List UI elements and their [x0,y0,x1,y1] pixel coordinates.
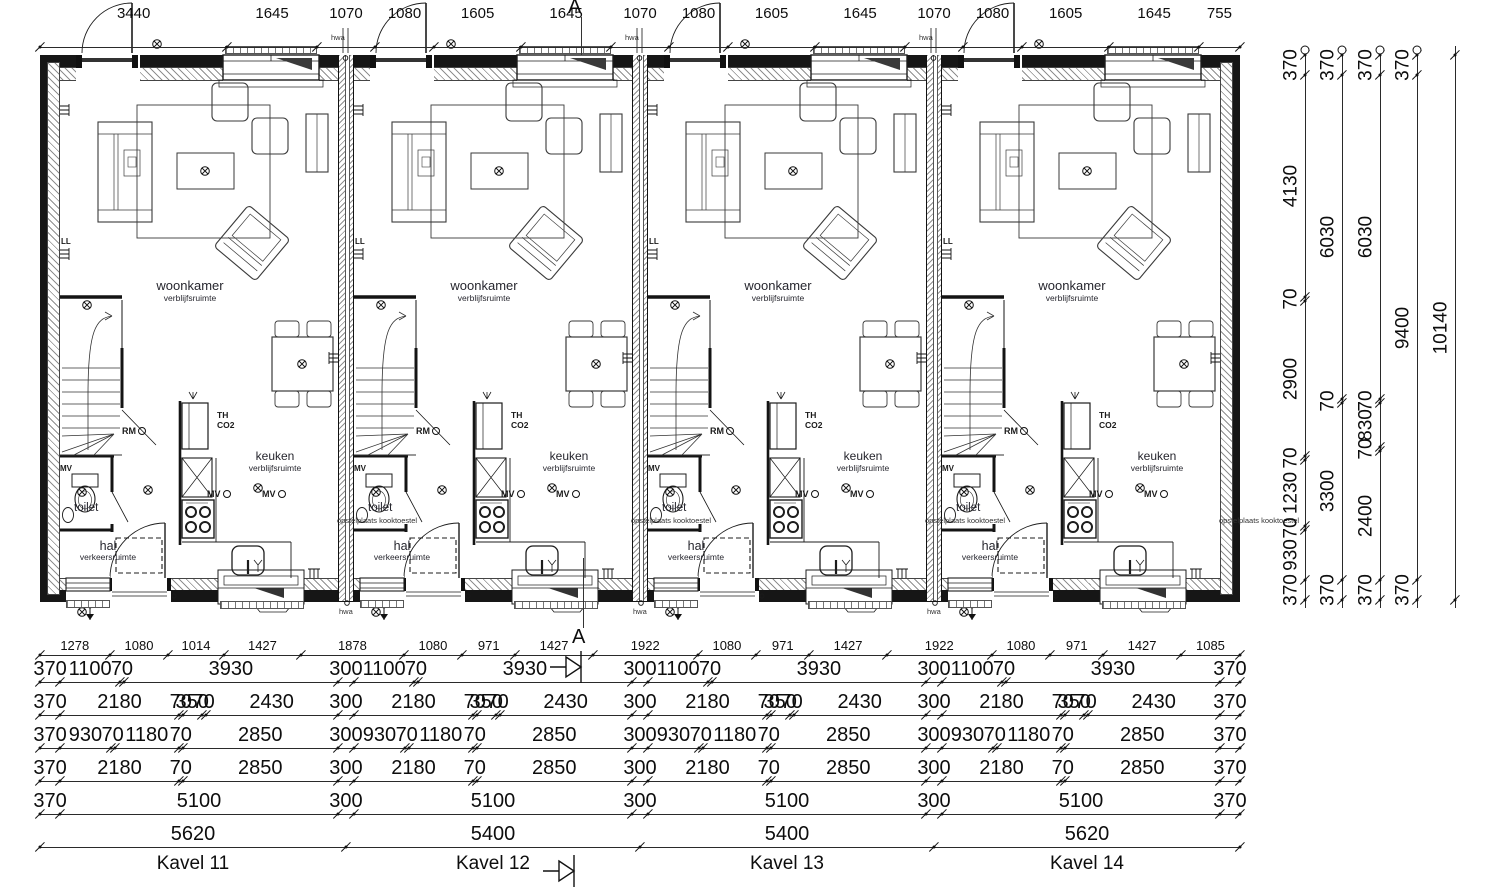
dimension-label: 2850 [238,758,283,778]
dimension-mark [1063,714,1066,717]
house-unit-3: woonkamer verblijfsruimte keuken verblij… [648,0,926,650]
dimension-mark [1086,714,1089,717]
dimension-mark [514,654,517,657]
mv-text: MV [850,489,864,499]
room-name: woonkamer [1012,279,1132,294]
dimension-label: 370 [1282,49,1301,81]
section-line-top [581,17,582,55]
rug [725,105,858,238]
plot-label: Kavel 14 [1050,853,1124,875]
dimension-mark [1379,450,1382,453]
dimension-mark [924,780,927,783]
dimension-label: 1645 [843,6,876,21]
dimension-mark [1376,46,1385,55]
dimension-mark [353,681,356,684]
room-label-toilet: toilet [956,502,980,515]
armchair [214,205,290,281]
mv-toilet-label: MV [354,465,366,473]
toilet-fixtures [63,474,99,523]
room-label-keuken: keuken verblijfsruimte [516,450,622,474]
dimension-mark [1380,46,1381,608]
dimension-label: 2850 [826,725,871,745]
room-label-hal: hal verkeersruimte [947,539,1033,563]
dimension-label: 930 [69,725,102,745]
mv-circle-icon [278,490,286,498]
stove [1064,500,1096,538]
mv-label: MV [262,490,286,499]
dimension-mark [39,846,42,849]
dimension-mark [1004,681,1007,684]
dimension-label: 1427 [834,639,863,652]
window-sill-band [66,600,110,608]
dimension-mark [1338,46,1347,55]
dimension-label: 2180 [97,758,142,778]
dimension-mark [755,654,758,657]
dimension-label: 1014 [182,639,211,652]
dimension-label: 1427 [1128,639,1157,652]
door-sill-band [220,601,304,609]
pouf [800,83,836,121]
co2-sensor-label: CO2 [805,421,822,430]
basin [945,508,956,523]
rm-circle-icon [1020,427,1028,435]
dimension-label: 1080 [712,639,741,652]
smoke-detector-label: RM [710,427,734,436]
room-subtitle: verkeersruimte [653,553,739,563]
dimension-mark [1304,73,1307,76]
sofa [980,122,1034,222]
dimension-mark [647,714,650,717]
dimension-label: 70 [464,758,486,778]
room-name: woonkamer [718,279,838,294]
dimension-label: 971 [772,639,794,652]
dimension-label: 1605 [1049,6,1082,21]
dimension-mark [315,46,318,49]
dimension-label: 70 [984,725,1006,745]
dimension-mark [1239,780,1242,783]
dimension-label: 70 [486,692,508,712]
dimension-mark [1341,599,1344,602]
dimension-mark [1379,401,1382,404]
dimension-label: 755 [1207,6,1232,21]
living-room-furniture [686,83,916,281]
dimension-label: 5400 [471,824,516,844]
mv-circle-icon [223,490,231,498]
dimension-label: 3300 [1319,470,1338,512]
dimension-mark [941,780,944,783]
dimension-mark [1218,714,1221,717]
dimension-label: 2400 [1357,494,1376,536]
dimension-mark [1413,46,1422,55]
dimension-mark [639,846,642,849]
dimension-label: 5100 [765,791,810,811]
radiator-symbols [942,104,1220,578]
dimension-label: 370 [1319,574,1338,606]
dimension-mark [1304,599,1307,602]
dimension-mark [647,747,650,750]
dimension-mark [1416,579,1419,582]
window-sill-band [948,600,992,608]
dimension-mark [39,747,42,750]
basin [357,508,368,523]
dimension-mark [769,780,772,783]
dimension-label: 370 [1213,791,1246,811]
room-subtitle: verblijfsruimte [516,464,622,474]
dimension-mark [336,780,339,783]
dimension-mark [885,654,888,657]
dimension-mark [39,654,42,657]
dimension-label: 1100 [951,659,994,679]
dimension-label: 971 [1066,639,1088,652]
dimension-label: 370 [1394,49,1413,81]
dimension-label: 2850 [826,758,871,778]
dimension-label: 70 [781,692,803,712]
plot-label: Kavel 12 [456,853,530,875]
dimension-label: 1180 [713,725,756,745]
dimension-mark [924,714,927,717]
dimension-mark [647,813,650,816]
dimension-label: 3930 [209,659,254,679]
dimension-mark [59,813,62,816]
dimension-mark [924,681,927,684]
dimension-mark [995,747,998,750]
mv-text: MV [207,489,221,499]
dimension-mark [1379,73,1382,76]
house-unit-1: woonkamer verblijfsruimte keuken verblij… [60,0,338,650]
dimension-label: 1070 [623,6,656,21]
dimension-label: 70 [405,659,427,679]
dimension-mark [1218,813,1221,816]
sideboard [306,114,328,172]
dimension-label: 70 [1052,758,1074,778]
dimension-label: 4130 [1282,165,1301,207]
dimension-label: 2180 [685,692,730,712]
kitchen-fixtures [1064,392,1173,578]
radiator-symbols [60,104,338,578]
section-marker-bottom: A [572,626,585,649]
dimension-mark [1342,46,1343,608]
house-unit-2: woonkamer verblijfsruimte keuken verblij… [354,0,632,650]
dimension-label: 370 [1357,49,1376,81]
dimension-label: 370 [33,659,66,679]
dimension-mark [1454,54,1457,57]
dimension-mark [941,681,944,684]
dimension-label: 5400 [765,824,810,844]
mv-label: MV [207,490,231,499]
dimension-label: 370 [33,725,66,745]
dimension-label: 5100 [1059,791,1104,811]
dimension-mark [432,46,435,49]
dimension-mark [1416,73,1419,76]
dimension-mark [1239,714,1242,717]
dimension-label: 70 [170,758,192,778]
dimension-mark [647,681,650,684]
stairs [942,312,1004,455]
armchair [1096,205,1172,281]
living-room-furniture [98,83,328,281]
dimension-mark [1063,747,1066,750]
mv-label: MV [850,490,874,499]
dimension-label: 370 [1213,758,1246,778]
door-sill-band [1102,601,1186,609]
dimension-mark [39,780,42,783]
dimension-mark [1379,599,1382,602]
front-window [807,53,911,87]
dimension-label: 370 [1394,574,1413,606]
dimension-mark [630,714,633,717]
dimension-mark [1341,401,1344,404]
dimension-mark [696,654,699,657]
dimension-mark [520,46,523,49]
dimension-mark [113,747,116,750]
section-line-bottom [583,558,584,628]
dimension-label: 2430 [543,692,588,712]
room-label-toilet: toilet [662,502,686,515]
cai-symbol [189,392,197,399]
room-label-woonkamer: woonkamer verblijfsruimte [130,279,250,304]
dimension-label: 3440 [117,6,150,21]
dimension-mark [1197,46,1200,49]
dimension-label: 370 [1213,692,1246,712]
dimension-mark [1239,681,1242,684]
dimension-mark [181,780,184,783]
door-sill-band [808,601,892,609]
dimension-label: 1230 [1282,472,1301,514]
dimension-mark [630,681,633,684]
dimension-label: 1645 [1137,6,1170,21]
room-label-keuken: keuken verblijfsruimte [810,450,916,474]
dimension-label: 1070 [917,6,950,21]
living-room-furniture [980,83,1210,281]
dimension-mark [167,654,170,657]
dimension-label: 5620 [171,824,216,844]
room-subtitle: verblijfsruimte [1104,464,1210,474]
dimension-label: 1878 [338,639,367,652]
plot-label: Kavel 13 [750,853,824,875]
room-label-hal: hal verkeersruimte [653,539,739,563]
dimension-mark [353,747,356,750]
dimension-label: 70 [170,725,192,745]
dimension-label: 70 [1075,692,1097,712]
mv-text: MV [1144,489,1158,499]
room-name: woonkamer [130,279,250,294]
window-sill-band [360,600,404,608]
dimension-label: 70 [1319,390,1338,411]
dimension-label: 70 [1357,439,1376,460]
dimension-label: 3930 [797,659,842,679]
dimension-mark [941,813,944,816]
dimension-mark [300,654,303,657]
dimension-mark [769,747,772,750]
dimension-mark [407,747,410,750]
dimension-label: 2900 [1282,357,1301,399]
pouf [1094,83,1130,121]
stairs [354,312,416,455]
dimension-label: 3930 [503,659,548,679]
dimension-label: 70 [690,725,712,745]
dimension-label: 2180 [979,758,1024,778]
mv-circle-icon [811,490,819,498]
dimension-label: 9400 [1394,306,1413,348]
dimension-label: 5100 [471,791,516,811]
dimension-mark [374,46,377,49]
rm-circle-icon [138,427,146,435]
radiator-symbols [648,104,926,578]
dimension-label: 370 [1319,49,1338,81]
room-name: keuken [1104,450,1210,464]
room-label-hal: hal verkeersruimte [65,539,151,563]
dimension-mark [59,681,62,684]
door-sill-band [514,601,598,609]
dimension-mark [647,780,650,783]
rm-text: RM [1004,426,1018,436]
dimension-mark [353,813,356,816]
kitchen-fixtures [770,392,879,578]
dimension-mark [461,654,464,657]
smoke-detector-label: RM [1004,427,1028,436]
room-subtitle: verkeersruimte [359,553,445,563]
dimension-mark [353,714,356,717]
pouf [212,83,248,121]
room-name: keuken [222,450,328,464]
dimension-label: 1085 [1196,639,1225,652]
dimension-label: 1427 [248,639,277,652]
dimension-mark [1239,747,1242,750]
dimension-mark [226,46,229,49]
dimension-label: 370 [33,692,66,712]
dimension-label: 930 [1282,539,1301,571]
window-sill-band [654,600,698,608]
stairs [648,312,710,455]
dimension-label: 1278 [60,639,89,652]
sideboard [600,114,622,172]
dimension-label: 70 [1282,288,1301,309]
dimension-mark [1455,46,1456,608]
kitchen-fixtures [182,392,291,578]
dimension-label: 971 [478,639,500,652]
dimension-mark [498,714,501,717]
dimension-label: 2850 [532,725,577,745]
dimension-label: 1180 [125,725,168,745]
dimension-label: 1922 [925,639,954,652]
room-subtitle: verkeersruimte [947,553,1033,563]
dimension-label: 70 [464,725,486,745]
dimension-label: 2430 [1131,692,1176,712]
dimension-mark [475,747,478,750]
floor-plan-drawing: woonkamer verblijfsruimte keuken verblij… [0,0,1511,891]
dimension-label: 5620 [1065,824,1110,844]
dimension-mark [402,654,405,657]
mv-circle-icon [572,490,580,498]
toilet-fixtures [357,474,393,523]
dimension-mark [941,747,944,750]
dimension-label: 370 [1357,574,1376,606]
dimension-mark [336,714,339,717]
thermostat-label: TH [217,411,228,420]
room-subtitle: verkeersruimte [65,553,151,563]
dimension-label: 2850 [1120,725,1165,745]
room-subtitle: verblijfsruimte [718,294,838,304]
dimension-mark [1416,599,1419,602]
mv-circle-icon [1160,490,1168,498]
dimension-mark [475,714,478,717]
dimension-label: 2180 [685,758,730,778]
dimension-label: 370 [33,758,66,778]
dimension-mark [39,46,42,49]
stairs [60,312,122,455]
dimension-mark [609,46,612,49]
dimension-mark [1304,299,1307,302]
dimension-mark [1102,654,1105,657]
dimension-label: 370 [33,791,66,811]
dimension-label: 370 [1213,659,1246,679]
cai-symbol [777,392,785,399]
front-window [1101,53,1205,87]
dimension-label: 70 [699,659,721,679]
dimension-label: 10140 [1432,301,1451,354]
dimension-mark [1301,46,1310,55]
dimension-mark [336,747,339,750]
toilet-window [360,576,404,602]
dimension-mark [1239,654,1242,657]
toilet-fixtures [945,474,981,523]
dimension-mark [204,714,207,717]
living-room-furniture [392,83,622,281]
room-subtitle: verblijfsruimte [810,464,916,474]
dimension-label: 930 [363,725,396,745]
dimension-mark [1304,529,1307,532]
basin [651,508,662,523]
rm-text: RM [416,426,430,436]
dimension-label: 370 [1213,725,1246,745]
dimension-label: 6030 [1357,216,1376,258]
cai-symbol [483,392,491,399]
mv-text: MV [1089,489,1103,499]
dimension-mark [1341,73,1344,76]
dimension-mark [1304,579,1307,582]
mv-label: MV [556,490,580,499]
dimension-mark [344,846,347,849]
toilet-window [948,576,992,602]
room-label-woonkamer: woonkamer verblijfsruimte [718,279,838,304]
rm-text: RM [710,426,724,436]
dimension-mark [40,682,1240,683]
dimension-mark [39,714,42,717]
dimension-mark [59,747,62,750]
dimension-label: 1080 [682,6,715,21]
stove [770,500,802,538]
thermostat-label: TH [1099,411,1110,420]
mv-text: MV [501,489,515,499]
front-window [219,53,323,87]
plot-label: Kavel 11 [157,853,230,875]
room-subtitle: verblijfsruimte [222,464,328,474]
dimension-mark [122,681,125,684]
dimension-mark [40,47,1240,48]
dimension-label: 2850 [238,725,283,745]
room-subtitle: verblijfsruimte [130,294,250,304]
dimension-mark [1063,780,1066,783]
dimension-mark [39,813,42,816]
dimension-label: 1922 [631,639,660,652]
dimension-label: 70 [758,758,780,778]
dimension-label: 1080 [125,639,154,652]
dimension-label: 1080 [418,639,447,652]
mv-label: MV [1089,490,1113,499]
room-label-toilet: toilet [368,502,392,515]
co2-sensor-label: CO2 [1099,421,1116,430]
dimension-label: 1070 [329,6,362,21]
